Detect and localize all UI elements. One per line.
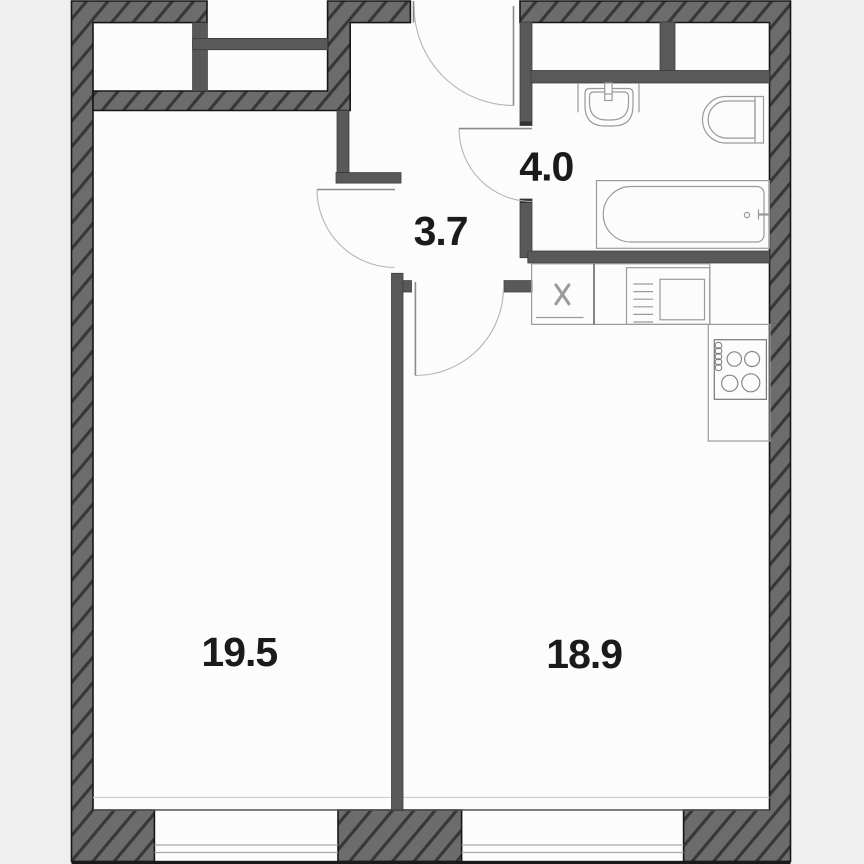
svg-text:3.7: 3.7 (414, 208, 468, 254)
svg-text:18.9: 18.9 (546, 631, 622, 677)
svg-text:19.5: 19.5 (201, 629, 277, 675)
svg-text:4.0: 4.0 (519, 144, 573, 190)
